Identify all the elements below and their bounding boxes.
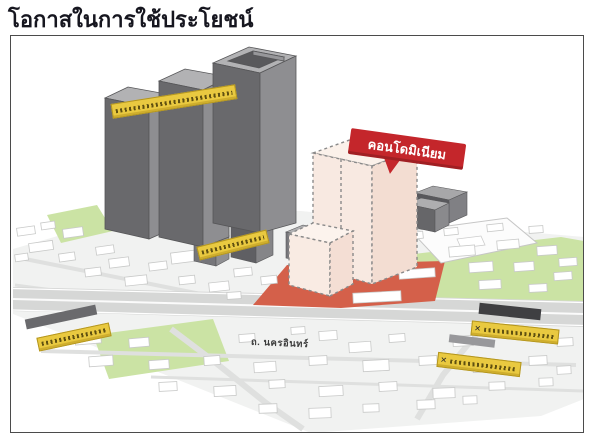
map-frame: ✕ ✕ ถ. นครอินทร์ คอนโดมิเนียม (10, 35, 584, 433)
screenshot-root: โอกาสในการใช้ประโยชน์ (0, 0, 600, 440)
road-label: ถ. นครอินทร์ (251, 335, 309, 352)
cross-mark-icon: ✕ (472, 324, 481, 333)
towers-group (105, 47, 296, 247)
cross-mark-icon: ✕ (438, 356, 448, 365)
sign-microtext (484, 327, 555, 338)
sign-microtext (450, 359, 517, 371)
page-title: โอกาสในการใช้ประโยชน์ (8, 2, 253, 37)
